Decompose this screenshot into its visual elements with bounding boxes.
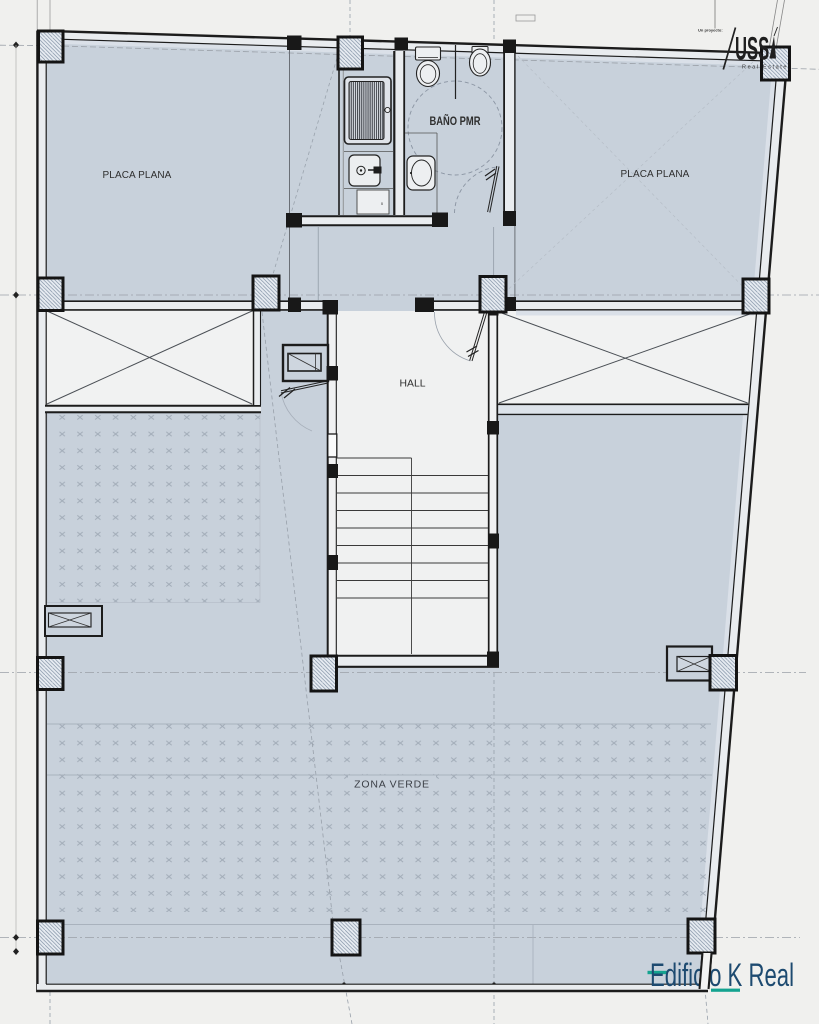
svg-text:Un proyecto:: Un proyecto: bbox=[698, 28, 723, 33]
svg-text:ZONA VERDE: ZONA VERDE bbox=[354, 779, 430, 791]
svg-text:USS: USS bbox=[735, 32, 769, 67]
svg-text:B: B bbox=[381, 202, 383, 206]
svg-text:PLACA PLANA: PLACA PLANA bbox=[103, 170, 172, 181]
svg-text:BAÑO PMR: BAÑO PMR bbox=[430, 115, 482, 128]
svg-text:Edificio K Real: Edificio K Real bbox=[650, 957, 794, 993]
svg-text:Real Estate: Real Estate bbox=[742, 65, 788, 71]
svg-text:HALL: HALL bbox=[400, 379, 426, 390]
svg-text:PLACA PLANA: PLACA PLANA bbox=[621, 169, 690, 180]
